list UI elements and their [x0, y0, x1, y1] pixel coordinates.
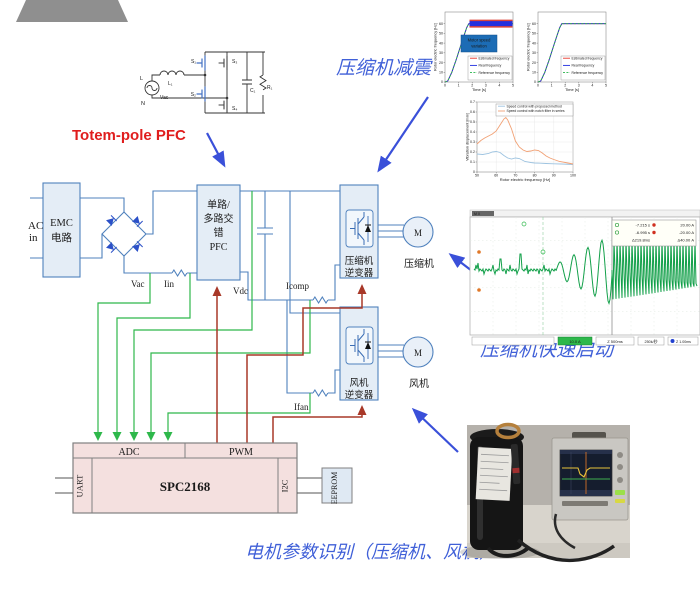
measurement-value: -20.00 A: [679, 230, 694, 235]
x-tick-label: 50: [475, 174, 479, 178]
x-tick-label: 5: [512, 84, 514, 88]
mcu-pwm-label: PWM: [229, 447, 253, 458]
inductor-icon: [160, 71, 184, 75]
y-axis-label: Rotor electric frequency [Hz]: [527, 23, 531, 71]
y-tick-label: 10: [532, 70, 536, 74]
y-tick-label: 0.7: [470, 100, 475, 104]
scope-level-marker: [477, 288, 481, 292]
comp-motor-label: 压缩机: [404, 257, 434, 270]
scope-knob: [617, 452, 623, 458]
fan-motor-symbol: M: [414, 348, 422, 358]
label-param-identification: 电机参数识别（压缩机、风机）: [245, 542, 497, 562]
y-tick-label: 10: [439, 70, 443, 74]
label-C1: C₁: [250, 88, 256, 94]
y-tick-label: 30: [532, 51, 536, 55]
y-tick-label: 60: [439, 22, 443, 26]
comp-motor-symbol: M: [414, 228, 422, 238]
y-tick-label: 60: [532, 22, 536, 26]
scope-channel2-icon: [671, 339, 675, 343]
scope-knob: [617, 464, 623, 470]
scope-level-marker: [477, 250, 481, 254]
measurement-value: 20.00 A: [680, 223, 694, 228]
comp-inverter-label-1: 压缩机: [345, 255, 374, 267]
x-tick-label: 1: [551, 84, 553, 88]
pfc-label-3: 错: [214, 226, 224, 239]
label-vac-source: Vac: [160, 95, 169, 101]
fan-motor-label: 风机: [409, 377, 429, 390]
legend-label: Reference frequency: [572, 71, 604, 75]
sine-icon: [147, 86, 157, 91]
signal-vac: Vac: [131, 279, 145, 289]
label-L: L: [140, 76, 143, 82]
ac-in-line2: in: [29, 232, 38, 244]
emc-label-2: 电路: [51, 231, 72, 244]
legend-label: Reference frequency: [479, 71, 511, 75]
arrow-totem-to-pfc: [207, 133, 224, 165]
measurement-value: Δ219.8ms: [632, 238, 650, 243]
y-tick-label: 0: [441, 80, 443, 84]
fan-inverter-label-1: 风机: [349, 377, 369, 389]
mcu-chip-label: SPC2168: [160, 479, 211, 494]
chart-motor-speed-damped: 0123450102030405060Time [s]Rotor electri…: [527, 12, 608, 92]
y-tick-label: 0: [473, 170, 475, 174]
oscilloscope-screenshot: M X-7.215 s20.00 A-6.995 s-20.00 AΔ219.8…: [470, 210, 700, 345]
mosfet-s3-icon: [219, 56, 227, 70]
scope-button-row: [562, 501, 608, 506]
y-tick-label: 0.1: [470, 160, 475, 164]
scope-samplerate-label: 250k/秒: [644, 339, 657, 344]
signal-icomp: Icomp: [286, 281, 309, 291]
x-axis-label: Time [s]: [565, 87, 579, 92]
label-S3: S₃: [232, 59, 237, 65]
arrow-damping-to-inverter: [379, 97, 428, 170]
pfc-label-2: 多路交: [204, 212, 234, 225]
annotation-text: Motor speed: [468, 38, 491, 43]
sense-line-icomp: [151, 300, 310, 439]
y-tick-label: 20: [439, 61, 443, 65]
label-S4: S₄: [232, 106, 237, 112]
scope-status-box: [472, 337, 554, 345]
x-tick-label: 90: [552, 174, 556, 178]
label-N: N: [141, 101, 145, 107]
label-R1: R₁: [267, 85, 273, 91]
scope-channel-label: 10.0 A: [569, 339, 581, 344]
label-L1: L₁: [168, 81, 173, 87]
x-tick-label: 4: [498, 84, 500, 88]
annotation-text: variation: [471, 44, 487, 49]
uart-pins: [55, 478, 73, 493]
chart-vibration-displacement: 506070809010000.10.20.30.40.50.60.7Rotor…: [466, 100, 577, 182]
y-tick-label: 0.5: [470, 120, 475, 124]
sense-line-iin: [117, 273, 190, 439]
arrow-photo-to-fan-inverter: [414, 410, 458, 452]
x-tick-label: 1: [458, 84, 460, 88]
pfc-label-1: 单路/: [207, 198, 230, 211]
y-tick-label: 40: [532, 41, 536, 45]
slide-canvas: L N Vac L₁ S₁ S₂ S₃ S₄ C₁ R₁ Totem-pole …: [0, 0, 700, 600]
igbt-icon: [346, 210, 373, 247]
y-tick-label: 0.6: [470, 110, 475, 114]
x-tick-label: 100: [570, 174, 576, 178]
y-tick-label: 40: [439, 41, 443, 45]
y-tick-label: 0.4: [470, 130, 475, 134]
totem-pole-title: Totem-pole PFC: [72, 127, 186, 144]
totem-pole-schematic: L N Vac L₁ S₁ S₂ S₃ S₄ C₁ R₁: [140, 52, 273, 113]
scope-header-bar: [470, 210, 700, 217]
y-tick-label: 0.3: [470, 140, 475, 144]
scope-lit-button: [615, 490, 625, 495]
legend-label: Speed control with proposed method: [507, 104, 562, 108]
legend-label: Real frequency: [479, 64, 502, 68]
y-tick-label: 50: [532, 32, 536, 36]
y-tick-label: 20: [532, 61, 536, 65]
mosfet-s2-icon: [197, 87, 205, 101]
photo-compressor-test-bench: [460, 425, 630, 561]
bridge-rectifier-icon: [102, 212, 146, 256]
igbt-icon: [346, 327, 373, 364]
y-tick-label: 50: [439, 32, 443, 36]
measurement-value: Δ40.00 A: [678, 238, 695, 243]
mosfet-s1-icon: [197, 56, 205, 70]
label-S2: S₂: [191, 92, 196, 98]
sense-line-vac: [98, 273, 150, 439]
signal-ifan: Ifan: [294, 402, 309, 412]
mcu-adc-label: ADC: [118, 447, 139, 458]
mcu-uart-label: UART: [75, 474, 85, 497]
sense-line-ifan: [168, 393, 310, 439]
y-axis-label: Rotor electric frequency [Hz]: [434, 23, 438, 71]
legend-label: Estimated frequency: [572, 56, 603, 60]
y-tick-label: 0: [534, 80, 536, 84]
x-tick-label: 0: [537, 84, 539, 88]
emc-block: [43, 183, 80, 277]
x-tick-label: 5: [605, 84, 607, 88]
photo-label-sticker: [476, 447, 513, 501]
resistor-icon: [260, 52, 266, 113]
mcu-i2c-label: I2C: [280, 479, 290, 492]
scope-knob: [617, 477, 623, 483]
fan-inverter-label-2: 逆变器: [345, 389, 374, 401]
measurement-value: -7.215 s: [636, 223, 650, 228]
legend-label: Speed control with notch filter in serie…: [507, 109, 565, 113]
comp-inverter-label-2: 逆变器: [345, 267, 374, 279]
legend-label: Estimated frequency: [479, 56, 510, 60]
scope-timebase-label: Z 500ms: [607, 339, 623, 344]
x-tick-label: 60: [494, 174, 498, 178]
signal-iin: Iin: [164, 279, 174, 289]
x-tick-label: 4: [591, 84, 593, 88]
scope-delay-label: Z 1.00ms: [676, 340, 691, 344]
chart-motor-speed-with-vibration: 0123450102030405060Time [s]Rotor electri…: [434, 12, 515, 92]
measurement-channel-icon: [652, 223, 655, 226]
signal-vdc: Vdc: [233, 286, 248, 296]
y-tick-label: 0.2: [470, 150, 475, 154]
capacitor-icon: [242, 52, 252, 113]
x-tick-label: 0: [444, 84, 446, 88]
x-axis-label: Time [s]: [472, 87, 486, 92]
mosfet-s4-icon: [219, 98, 227, 112]
label-compressor-damping: 压缩机减震: [336, 57, 433, 79]
x-axis-label: Rotor electric frequency [Hz]: [500, 177, 550, 182]
y-tick-label: 30: [439, 51, 443, 55]
measurement-value: -6.995 s: [636, 230, 650, 235]
diagram-svg: L N Vac L₁ S₁ S₂ S₃ S₄ C₁ R₁ Totem-pole …: [0, 0, 700, 600]
corner-decoration: [16, 0, 128, 22]
label-S1: S₁: [191, 59, 196, 65]
ac-in-line1: AC: [28, 220, 43, 232]
dc-bus-capacitor-icon: [257, 191, 273, 300]
scope-header-label: M X: [474, 212, 481, 216]
legend-label: Real frequency: [572, 64, 595, 68]
measurement-channel-icon: [652, 231, 655, 234]
i2c-bus-lines: [297, 478, 322, 493]
main-block-diagram: AC in EMC 电路 单路/ 多路交 错 PFC 压缩机 逆变器 风机 逆变…: [28, 183, 434, 513]
pfc-label-4: PFC: [210, 242, 228, 253]
eeprom-label: EEPROM: [330, 472, 339, 504]
y-axis-label: Vibration displacement [mm]: [466, 113, 470, 161]
emc-label-1: EMC: [50, 218, 73, 229]
